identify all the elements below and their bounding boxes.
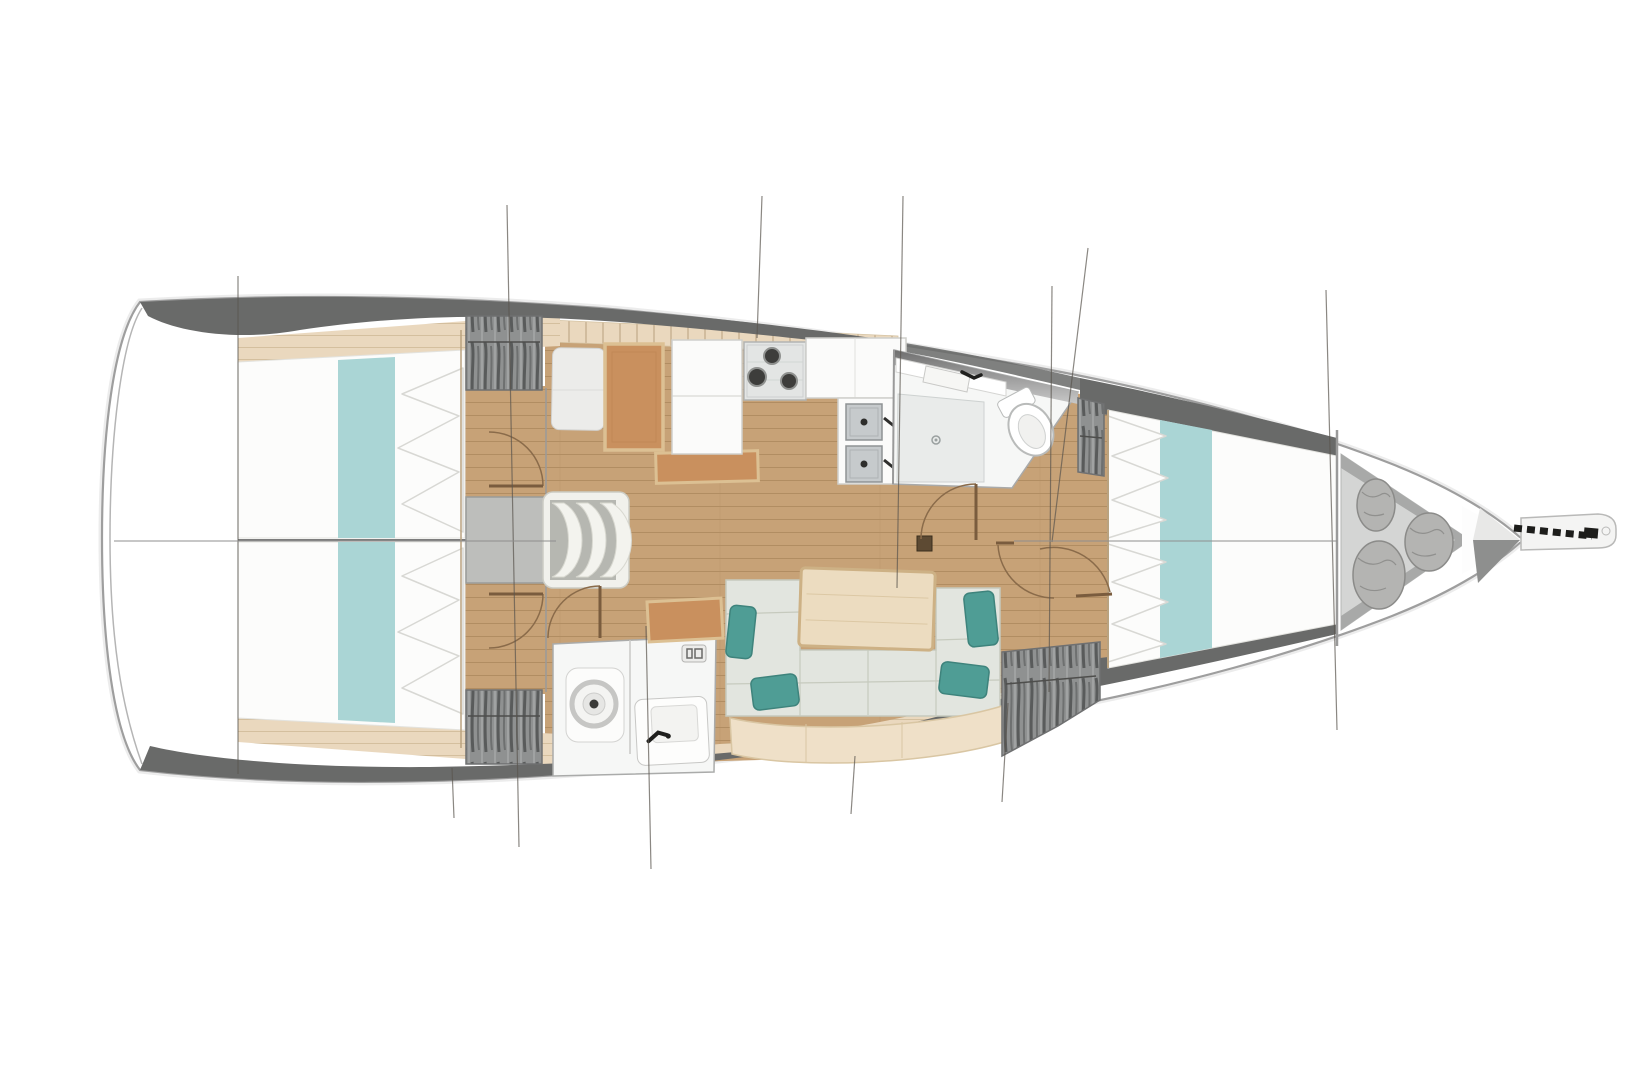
sail-bag	[1405, 513, 1453, 571]
sink-drain-icon	[861, 461, 868, 468]
bed-runner-port	[338, 357, 395, 538]
aft-cabin-port	[238, 350, 465, 538]
mast-step-icon	[917, 536, 932, 551]
forward-cabin	[1108, 410, 1337, 668]
floor-plan-svg: Sailing yacht interior floor plan — over…	[0, 0, 1635, 1080]
galley-counter	[806, 338, 906, 398]
bed-pillows-starboard	[398, 548, 463, 714]
aft-head	[553, 636, 716, 776]
sail-bag	[1357, 479, 1395, 531]
toilet-drain-dot	[590, 700, 599, 709]
basin	[651, 705, 699, 743]
hanging-clothes-icon	[466, 316, 542, 390]
aft-cabin-port-floor	[462, 386, 546, 498]
yacht-floor-plan: Sailing yacht interior floor plan — over…	[0, 0, 1635, 1080]
teal-cushion	[750, 673, 800, 710]
nav-shelf	[656, 451, 759, 484]
storage-bench	[647, 598, 723, 642]
salon-table	[799, 568, 936, 651]
bed-runner-forward	[1160, 420, 1212, 658]
aft-cabin-starboard-floor	[462, 582, 546, 694]
galley-fridge	[672, 340, 742, 454]
stove-burner-icon	[764, 348, 780, 364]
companionway	[466, 492, 632, 588]
aft-cabin-starboard	[238, 542, 465, 730]
toilet-aft	[566, 668, 624, 742]
bed-pillows-forward-bottom	[1108, 544, 1168, 662]
wardrobe-forward-bottom	[1002, 642, 1100, 756]
sail-bag	[1353, 541, 1405, 609]
bed-pillows-forward-top	[1108, 416, 1168, 538]
hanging-clothes-icon	[466, 690, 542, 764]
stove-burner-icon	[748, 368, 766, 386]
nav-seat	[551, 348, 605, 431]
shower-floor	[897, 394, 984, 482]
washbasin-aft	[634, 696, 709, 766]
wardrobe-aft-starboard	[466, 690, 542, 764]
shower-drain-dot	[935, 439, 938, 442]
hanging-clothes-icon	[1002, 642, 1100, 756]
wardrobe-forward-top	[1078, 398, 1104, 476]
companionway-landing	[466, 497, 545, 583]
station-line	[851, 756, 855, 814]
v-berth	[1108, 410, 1337, 668]
teal-cushion	[963, 591, 998, 648]
forward-head-wall	[893, 350, 894, 484]
stove-burner-icon	[781, 373, 797, 389]
bed-runner-starboard	[338, 542, 395, 723]
bow-tip-shade-light	[1473, 508, 1520, 540]
sink-drain-icon	[861, 419, 868, 426]
bed-pillows-port	[398, 368, 463, 532]
wardrobe-aft-port	[466, 316, 542, 390]
bow-tip-shade-dark	[1473, 540, 1520, 583]
anchor-head-icon	[1584, 527, 1599, 538]
chart-table	[605, 344, 663, 450]
bowsprit	[1514, 514, 1616, 550]
vent-grille-icon	[682, 645, 706, 662]
teal-cushion	[938, 661, 990, 699]
station-line	[757, 196, 762, 338]
teal-cushion	[725, 605, 756, 659]
